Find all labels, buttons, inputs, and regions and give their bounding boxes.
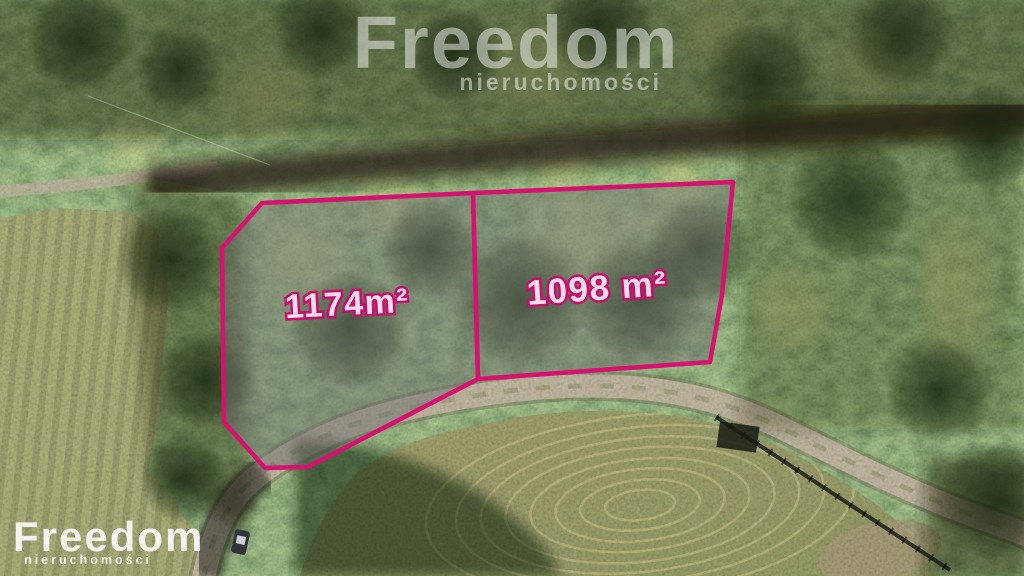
plot-area-label-1: 1174m² xyxy=(284,282,410,326)
agency-logo: Freedom nieruchomości xyxy=(13,513,204,567)
watermark-subtitle: nieruchomości xyxy=(459,69,662,95)
listing-photo-stage: 1174m² 1098 m² Freedom nieruchomości Fre… xyxy=(0,0,1024,576)
logo-subtitle: nieruchomości xyxy=(24,553,152,567)
gate xyxy=(716,421,759,452)
watermark: Freedom nieruchomości xyxy=(353,1,680,95)
aerial-photo: 1174m² 1098 m² Freedom nieruchomości Fre… xyxy=(0,0,1024,576)
